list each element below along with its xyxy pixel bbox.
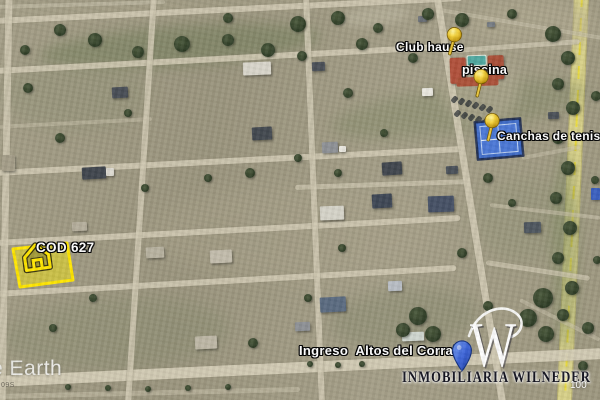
house [72, 222, 87, 232]
tree [185, 385, 191, 391]
tree [557, 309, 569, 321]
tree [49, 324, 57, 332]
house [446, 166, 458, 175]
tree [343, 88, 353, 98]
satellite-map-canvas[interactable]: Club hause piscina Canchas de tenis COD … [0, 0, 600, 400]
tree [550, 192, 562, 204]
tree [563, 221, 577, 235]
wilneder-logo: W W [455, 300, 531, 376]
tree [132, 46, 144, 58]
tree [145, 386, 151, 392]
house [548, 112, 559, 119]
tree [141, 184, 149, 192]
tree [248, 338, 258, 348]
tree [124, 109, 132, 117]
tree [582, 322, 594, 334]
tree [290, 16, 306, 32]
tree [297, 51, 307, 61]
house [312, 62, 325, 71]
tree [334, 169, 342, 177]
tree [356, 38, 368, 50]
tree [331, 11, 345, 25]
tree [54, 24, 66, 36]
house [112, 87, 129, 99]
tree [508, 199, 516, 207]
house [243, 62, 271, 76]
tree [533, 288, 553, 308]
corner-code-text: 09S [1, 382, 15, 389]
tree [359, 361, 365, 367]
tree [89, 294, 97, 302]
logo-letter: W [470, 309, 516, 376]
house [210, 249, 233, 263]
tree [561, 161, 575, 175]
tree [591, 176, 599, 184]
tree [380, 129, 388, 137]
house [382, 161, 403, 175]
house [339, 146, 346, 152]
tree [422, 8, 434, 20]
tree [204, 174, 212, 182]
tree [566, 101, 580, 115]
tree [396, 323, 410, 337]
tree [507, 9, 517, 19]
house [487, 22, 495, 27]
scale-label: 100 [570, 380, 587, 391]
entrance-label[interactable]: Ingreso Altos del Corral [299, 344, 457, 358]
tree [408, 53, 418, 63]
house [252, 126, 273, 140]
tree [373, 23, 383, 33]
lot-code-label[interactable]: COD 627 [36, 241, 94, 256]
house [524, 222, 541, 234]
tree [538, 326, 554, 342]
house [106, 168, 114, 176]
tree [593, 256, 600, 264]
house [195, 335, 218, 349]
house [146, 247, 165, 259]
house [322, 142, 339, 154]
house [82, 166, 107, 179]
tree [552, 78, 564, 90]
house [422, 88, 433, 96]
road [295, 179, 470, 190]
tree [223, 13, 233, 23]
tennis-courts-label[interactable]: Canchas de tenis [497, 130, 600, 143]
tree [174, 36, 190, 52]
tree [545, 26, 561, 42]
tree [335, 362, 341, 368]
house [372, 193, 393, 208]
tree [591, 91, 600, 101]
tree [20, 45, 30, 55]
tree [561, 51, 575, 65]
house [320, 206, 344, 221]
tree [483, 173, 493, 183]
tree [65, 384, 71, 390]
tree [455, 13, 469, 27]
tree [565, 281, 579, 295]
tree [225, 384, 231, 390]
tree [88, 33, 102, 47]
tree [457, 248, 467, 258]
tree [294, 154, 302, 162]
google-earth-logo: e Earth [0, 357, 62, 381]
tree [245, 168, 255, 178]
house [2, 155, 15, 171]
tree [222, 34, 234, 46]
house [388, 281, 402, 291]
tree [261, 43, 275, 57]
house [428, 196, 455, 213]
tree [55, 133, 65, 143]
house [591, 188, 600, 200]
tree [409, 307, 427, 325]
house [295, 322, 310, 332]
tree [425, 326, 441, 342]
tree [105, 385, 111, 391]
tree [552, 252, 564, 264]
tree [307, 361, 313, 367]
tree [338, 244, 346, 252]
tree [23, 83, 33, 93]
house [320, 296, 347, 312]
agency-watermark: INMOBILIARIA WILNEDER [402, 369, 591, 387]
tree [304, 294, 312, 302]
